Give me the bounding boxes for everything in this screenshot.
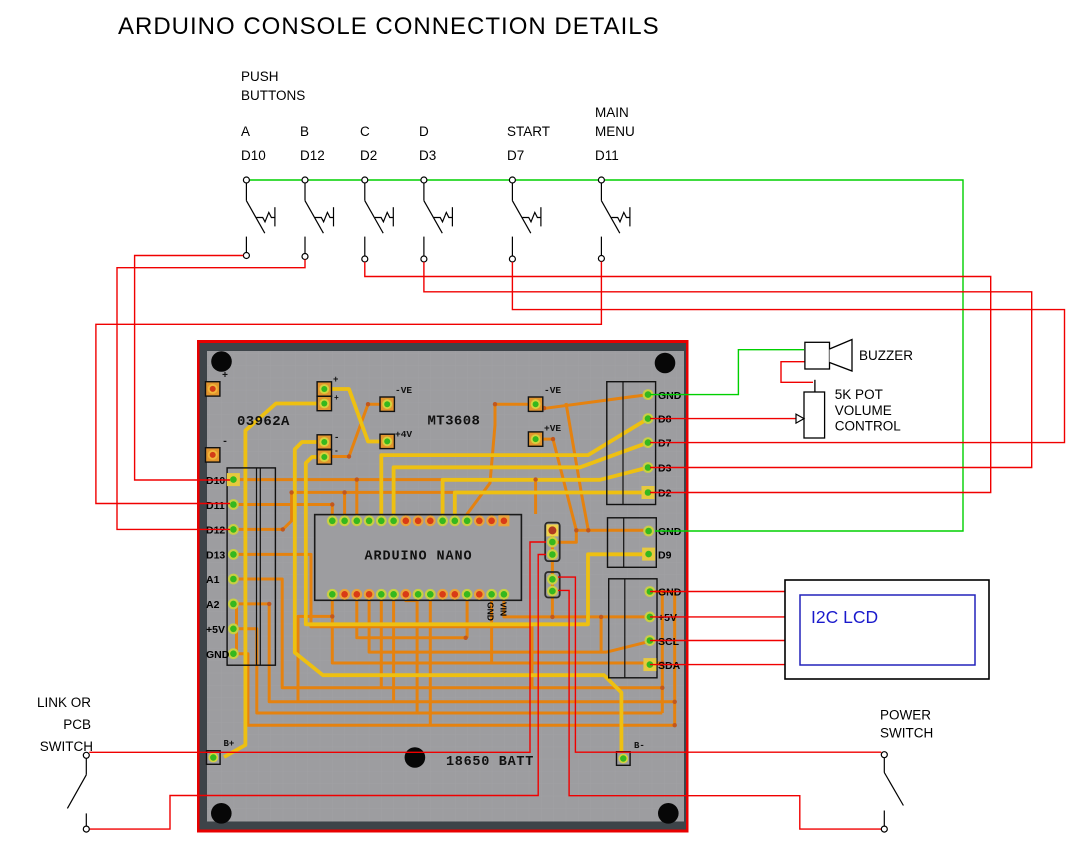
svg-text:+4V: +4V (395, 429, 412, 440)
svg-text:MAIN: MAIN (595, 105, 629, 120)
svg-text:+: + (222, 371, 228, 382)
svg-text:D11: D11 (595, 148, 619, 163)
svg-text:ARDUINO CONSOLE CONNECTION DET: ARDUINO CONSOLE CONNECTION DETAILS (118, 13, 660, 40)
svg-text:CONTROL: CONTROL (835, 419, 901, 434)
svg-text:5K POT: 5K POT (835, 387, 883, 402)
svg-text:LINK OR: LINK OR (37, 695, 91, 710)
svg-text:A2: A2 (206, 599, 220, 611)
svg-text:-VE: -VE (544, 385, 561, 396)
svg-text:B+: B+ (224, 739, 235, 749)
svg-text:-: - (222, 437, 228, 448)
svg-text:D11: D11 (206, 500, 225, 512)
svg-text:+5V: +5V (206, 624, 225, 636)
svg-text:D9: D9 (658, 550, 672, 562)
svg-text:B-: B- (634, 741, 645, 751)
svg-text:D7: D7 (507, 148, 524, 163)
svg-text:18650 BATT: 18650 BATT (446, 755, 534, 770)
svg-text:03962A: 03962A (237, 414, 290, 430)
svg-text:+: + (334, 394, 339, 403)
svg-text:-VE: -VE (395, 385, 412, 396)
svg-text:ARDUINO NANO: ARDUINO NANO (365, 550, 473, 565)
svg-text:D3: D3 (658, 463, 672, 475)
svg-text:BUZZER: BUZZER (859, 348, 913, 363)
svg-text:START: START (507, 124, 550, 139)
svg-text:D10: D10 (241, 148, 266, 163)
svg-text:+VE: +VE (544, 423, 561, 434)
svg-text:I2C LCD: I2C LCD (811, 607, 878, 627)
svg-text:SWITCH: SWITCH (880, 726, 933, 741)
svg-text:SDA: SDA (658, 660, 681, 672)
svg-text:+5V: +5V (658, 612, 677, 624)
svg-text:GND: GND (486, 602, 496, 621)
svg-text:D: D (419, 124, 429, 139)
svg-text:+: + (333, 375, 338, 385)
svg-text:D8: D8 (658, 414, 672, 426)
svg-text:B: B (300, 124, 309, 139)
svg-text:C: C (360, 124, 370, 139)
svg-text:VIN: VIN (498, 602, 508, 616)
svg-text:VOLUME: VOLUME (835, 403, 892, 418)
svg-text:GND: GND (658, 587, 682, 599)
svg-text:MT3608: MT3608 (428, 414, 481, 430)
svg-text:D12: D12 (206, 525, 225, 537)
svg-text:A1: A1 (206, 574, 220, 586)
svg-text:PCB: PCB (63, 717, 91, 732)
svg-text:SWITCH: SWITCH (40, 739, 93, 754)
svg-text:-: - (334, 447, 339, 456)
svg-text:GND: GND (658, 390, 682, 402)
svg-text:D2: D2 (658, 488, 672, 500)
svg-text:SCL: SCL (658, 636, 680, 648)
svg-text:MENU: MENU (595, 124, 635, 139)
svg-text:-: - (334, 433, 339, 443)
svg-text:D7: D7 (658, 438, 672, 450)
svg-text:POWER: POWER (880, 708, 931, 723)
svg-text:D13: D13 (206, 550, 225, 562)
svg-text:PUSH: PUSH (241, 69, 279, 84)
svg-text:GND: GND (658, 526, 682, 538)
svg-text:D12: D12 (300, 148, 325, 163)
svg-text:D10: D10 (206, 475, 225, 487)
svg-text:D2: D2 (360, 148, 377, 163)
svg-text:D3: D3 (419, 148, 436, 163)
svg-text:A: A (241, 124, 250, 139)
svg-text:BUTTONS: BUTTONS (241, 88, 305, 103)
svg-text:GND: GND (206, 649, 230, 661)
